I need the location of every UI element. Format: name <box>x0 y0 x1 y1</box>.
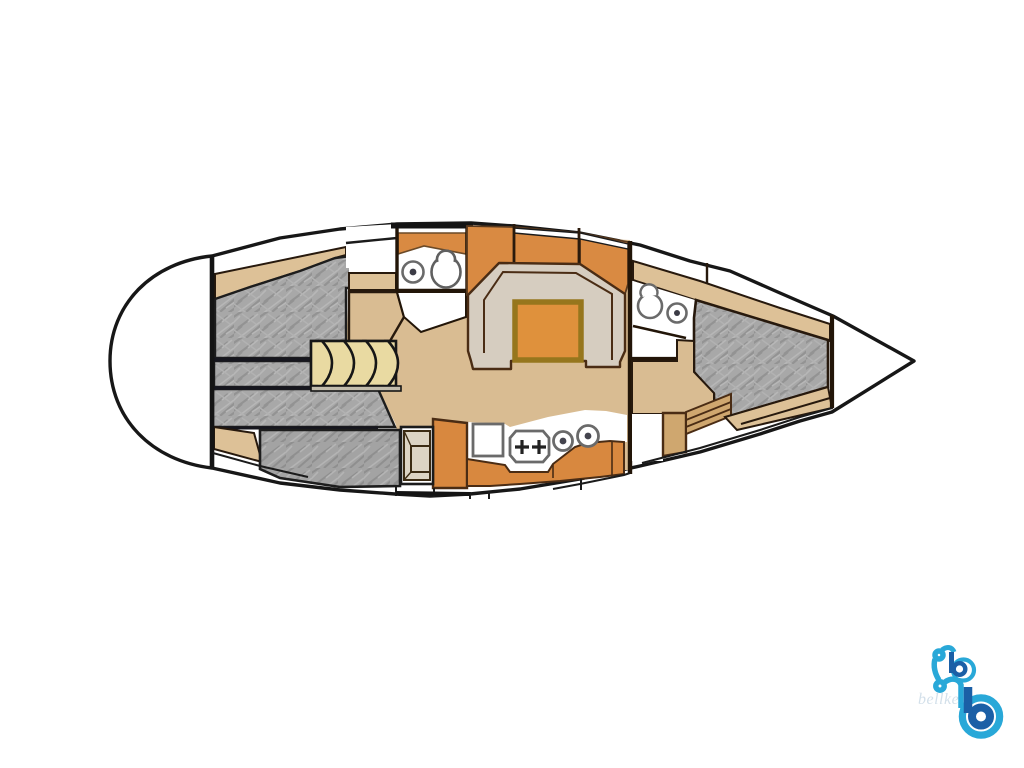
svg-text:bellke: bellke <box>918 691 959 708</box>
